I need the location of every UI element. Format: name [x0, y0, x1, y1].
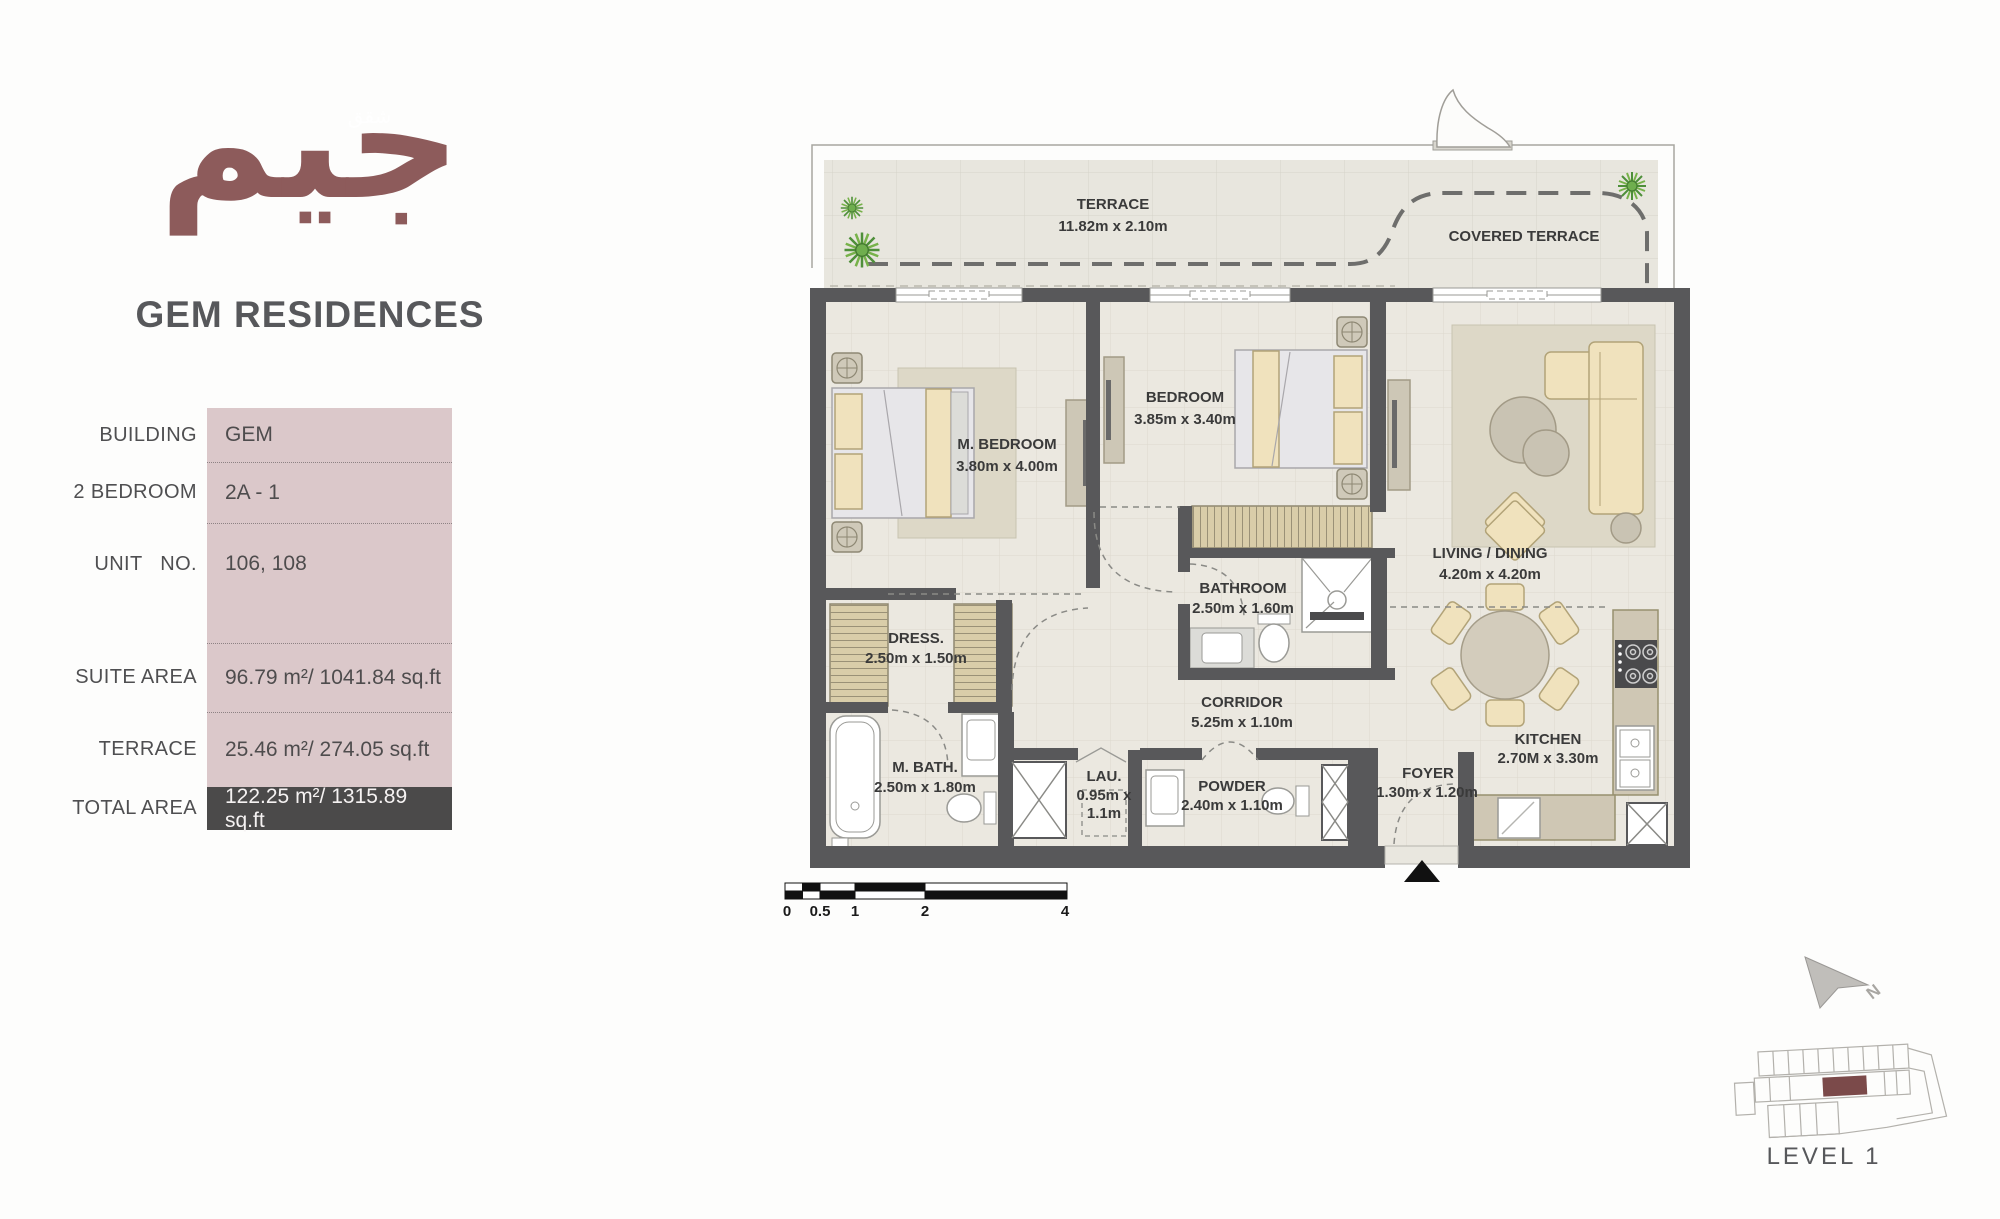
north-arrow-icon: N [1805, 957, 1884, 1008]
nightstand-lamp [832, 353, 862, 383]
blanket [926, 389, 951, 517]
svg-text:KITCHEN: KITCHEN [1515, 731, 1582, 748]
svg-text:CORRIDOR: CORRIDOR [1201, 694, 1283, 711]
svg-text:2.70M x 3.30m: 2.70M x 3.30m [1498, 750, 1599, 767]
nightstand-lamp [1337, 469, 1367, 499]
svg-text:3.85m x 3.40m: 3.85m x 3.40m [1134, 411, 1236, 428]
page-title: GEM RESIDENCES [100, 294, 520, 336]
bed-footboard [951, 392, 968, 514]
row-value: 25.46 m²/ 274.05 sq.ft [207, 712, 452, 787]
svg-text:4: 4 [1061, 903, 1070, 920]
logo-arabic-overlay: شقق [348, 104, 392, 128]
brand-header: جيم شقق GEM RESIDENCES [100, 18, 520, 336]
svg-text:1.30m x 1.20m: 1.30m x 1.20m [1376, 784, 1478, 801]
terrace-zone: TERRACE 11.82m x 2.10m COVERED TERRACE [812, 90, 1674, 290]
svg-text:11.82m x 2.10m: 11.82m x 2.10m [1058, 218, 1167, 235]
toilet [1258, 614, 1290, 662]
table-row: BUILDING GEM [60, 408, 452, 462]
right-wall [1674, 288, 1690, 868]
window [1150, 288, 1290, 302]
nightstand-lamp [832, 522, 862, 552]
window [896, 288, 1022, 302]
svg-text:2.50m x 1.80m: 2.50m x 1.80m [874, 779, 976, 796]
row-label: SUITE AREA [60, 666, 207, 689]
svg-text:0: 0 [783, 903, 791, 920]
row-value: 2A - 1 [207, 462, 452, 523]
row-label: UNIT NO. [60, 553, 207, 576]
svg-text:DRESS.: DRESS. [888, 630, 944, 647]
svg-text:1.1m: 1.1m [1087, 805, 1121, 822]
key-plan [1733, 1042, 1947, 1139]
svg-text:LAU.: LAU. [1087, 768, 1122, 785]
pillow [835, 454, 862, 509]
svg-text:COVERED TERRACE: COVERED TERRACE [1449, 228, 1600, 245]
coffee-table [1523, 430, 1569, 476]
unit-info-table: BUILDING GEM 2 BEDROOM 2A - 1 UNIT NO. 1… [60, 408, 452, 830]
window [1433, 288, 1601, 302]
room-label-covered-terrace: COVERED TERRACE [1449, 228, 1600, 245]
svg-text:3.80m x 4.00m: 3.80m x 4.00m [956, 458, 1058, 475]
svg-text:4.20m x 4.20m: 4.20m x 4.20m [1439, 566, 1541, 583]
svg-text:BATHROOM: BATHROOM [1199, 580, 1286, 597]
row-value: GEM [207, 408, 452, 462]
svg-text:5.25m x 1.10m: 5.25m x 1.10m [1191, 714, 1293, 731]
sink [1202, 633, 1242, 663]
shaft [1322, 765, 1348, 840]
pillow [835, 394, 862, 449]
shaft [1012, 762, 1066, 838]
svg-text:TERRACE: TERRACE [1077, 196, 1150, 213]
windows [896, 288, 1601, 302]
table-row: TERRACE 25.46 m²/ 274.05 sq.ft [60, 712, 452, 787]
tv [1106, 380, 1111, 440]
plant-icon [845, 233, 880, 268]
svg-text:POWDER: POWDER [1198, 778, 1266, 795]
row-value: 122.25 m²/ 1315.89 sq.ft [207, 787, 452, 830]
tv [1392, 400, 1397, 468]
table-row: UNIT NO. 106, 108 [60, 523, 452, 643]
plant-icon [841, 197, 863, 219]
logo-arabic-text: جيم [159, 51, 461, 235]
svg-text:0.5: 0.5 [810, 903, 831, 920]
pillow [1334, 412, 1362, 464]
row-label: TOTAL AREA [60, 797, 207, 820]
table-row: SUITE AREA 96.79 m²/ 1041.84 sq.ft [60, 643, 452, 712]
svg-text:BEDROOM: BEDROOM [1146, 389, 1224, 406]
svg-text:2.40m x 1.10m: 2.40m x 1.10m [1181, 797, 1283, 814]
entrance [1385, 846, 1458, 882]
row-value: 96.79 m²/ 1041.84 sq.ft [207, 643, 452, 712]
row-label: 2 BEDROOM [60, 481, 207, 504]
svg-text:M. BEDROOM: M. BEDROOM [957, 436, 1056, 453]
nightstand-lamp [1337, 317, 1367, 347]
shaft [1627, 803, 1667, 845]
floor-plan: TERRACE 11.82m x 2.10m COVERED TERRACE [600, 40, 2000, 1200]
row-label: BUILDING [60, 424, 207, 447]
svg-text:1: 1 [851, 903, 859, 920]
level-label: LEVEL 1 [1767, 1143, 1882, 1170]
dining-chair [1486, 584, 1524, 610]
shower [1302, 558, 1372, 632]
svg-text:0.95m x: 0.95m x [1076, 787, 1132, 804]
svg-text:FOYER: FOYER [1402, 765, 1454, 782]
dining-table [1461, 611, 1549, 699]
dining-chair [1486, 700, 1524, 726]
row-value: 106, 108 [207, 523, 452, 643]
gem-arabic-logo: جيم شقق [100, 18, 520, 280]
svg-text:LIVING / DINING: LIVING / DINING [1432, 545, 1547, 562]
svg-text:2.50m x 1.50m: 2.50m x 1.50m [865, 650, 967, 667]
plant-icon [1618, 172, 1646, 200]
pillow [1334, 356, 1362, 408]
row-label: TERRACE [60, 738, 207, 761]
svg-text:2: 2 [921, 903, 929, 920]
scale-bar: 0 0.5 1 2 4 [783, 883, 1070, 920]
svg-text:2.50m x 1.60m: 2.50m x 1.60m [1192, 600, 1294, 617]
side-table [1611, 513, 1641, 543]
toilet [947, 792, 996, 824]
table-row-total: TOTAL AREA 122.25 m²/ 1315.89 sq.ft [60, 787, 452, 830]
tv-console [1388, 380, 1410, 490]
table-row: 2 BEDROOM 2A - 1 [60, 462, 452, 523]
svg-text:M. BATH.: M. BATH. [892, 759, 958, 776]
left-wall [810, 288, 826, 868]
canopy-sail [1437, 90, 1510, 147]
sofa [1589, 342, 1643, 514]
unit-highlight [1822, 1075, 1867, 1096]
